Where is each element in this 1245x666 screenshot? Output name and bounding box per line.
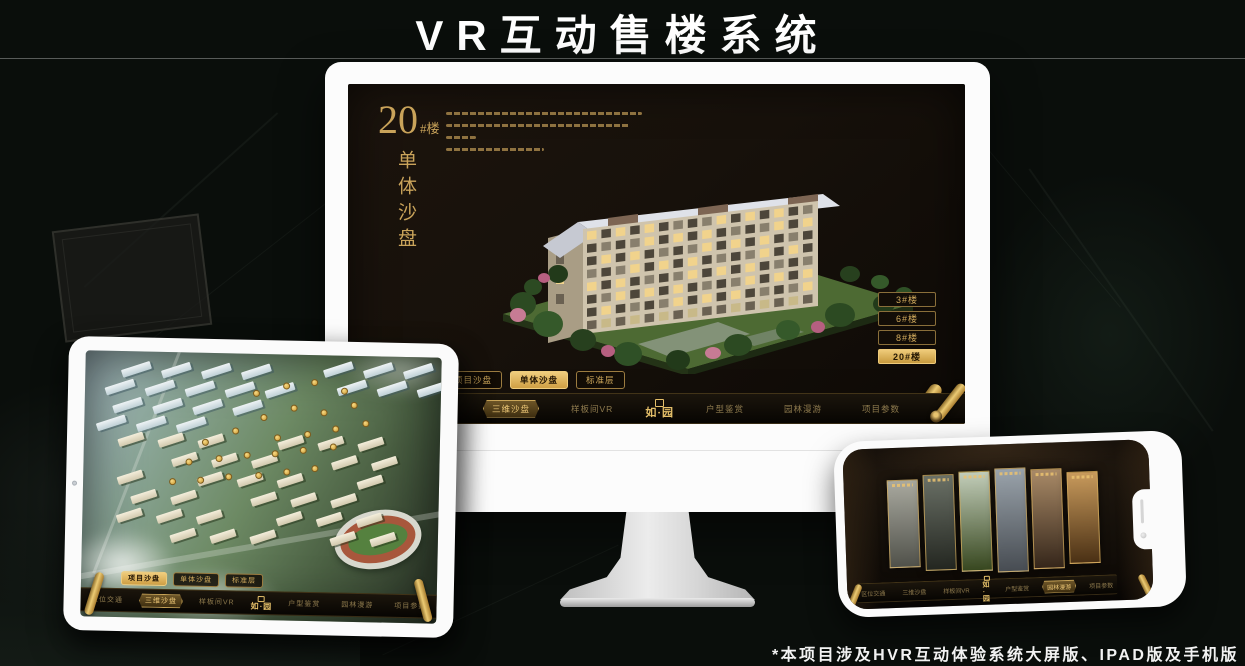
phone-notch	[1132, 489, 1153, 550]
building-slab	[96, 414, 127, 431]
seal-icon	[258, 595, 265, 601]
building-slab	[152, 398, 183, 415]
seal-icon	[984, 575, 990, 580]
brand-logo-text: 如·园	[645, 408, 674, 419]
floor-button[interactable]: 20#楼	[878, 349, 936, 364]
building-slab	[176, 416, 207, 433]
panel-caption	[964, 475, 985, 479]
bg-plaque	[52, 213, 213, 342]
subtab[interactable]: 项目沙盘	[121, 571, 167, 586]
nav-item[interactable]: 园林漫游	[776, 401, 830, 417]
building-marker[interactable]	[244, 452, 251, 459]
panel-caption	[928, 478, 949, 482]
nav-item[interactable]: 园林漫游	[1042, 579, 1076, 593]
building-3d-model[interactable]	[488, 154, 928, 374]
building-slab	[171, 452, 198, 468]
building-marker[interactable]	[185, 458, 192, 465]
building-slab	[145, 379, 176, 396]
building-slab	[371, 456, 398, 472]
building-marker[interactable]	[300, 447, 307, 454]
building-slab	[277, 473, 304, 489]
nav-item[interactable]: 三维沙盘	[898, 585, 930, 597]
building-slab	[330, 493, 357, 509]
building-slab	[250, 491, 277, 507]
building-marker[interactable]	[225, 473, 232, 480]
building-slab	[156, 508, 183, 524]
panel-caption	[1072, 475, 1093, 479]
nav-item[interactable]: 园林漫游	[336, 599, 378, 612]
building-marker[interactable]	[291, 405, 298, 412]
panel-caption	[1036, 472, 1057, 476]
building-marker[interactable]	[216, 455, 223, 462]
building-marker[interactable]	[232, 427, 239, 434]
gallery-panel-garden[interactable]	[958, 471, 992, 572]
building-slab	[130, 489, 157, 505]
building-marker[interactable]	[169, 478, 176, 485]
phone-frame: 区位交通三维沙盘样板间VR 如·园 户型鉴赏园林漫游项目参数	[833, 430, 1187, 618]
gallery-panel-interior-dark[interactable]	[923, 474, 957, 571]
building-slab	[201, 363, 232, 380]
brand-logo[interactable]: 如·园	[250, 595, 272, 610]
building-slab	[121, 361, 152, 378]
tablet-device: 项目沙盘单体沙盘标准层 区位交通三维沙盘样板间VR 如·园 户型鉴赏园林漫游项目…	[63, 336, 459, 638]
building-marker[interactable]	[283, 468, 290, 475]
monitor-stand	[560, 512, 755, 600]
building-slab	[196, 509, 223, 525]
building-slab	[241, 363, 272, 380]
building-slab	[170, 490, 197, 506]
gallery-panel-autumn[interactable]	[1030, 468, 1064, 569]
building-marker[interactable]	[330, 443, 337, 450]
subtab[interactable]: 单体沙盘	[173, 572, 219, 587]
subtab[interactable]: 标准层	[576, 371, 625, 389]
nav-item[interactable]: 项目参数	[1085, 579, 1117, 591]
phone-device: 区位交通三维沙盘样板间VR 如·园 户型鉴赏园林漫游项目参数	[833, 430, 1187, 618]
panel-caption	[999, 472, 1020, 476]
building-slab	[161, 362, 192, 379]
nav-item[interactable]: 户型鉴赏	[698, 401, 752, 417]
floor-button[interactable]: 6#楼	[878, 311, 936, 326]
building-slab	[232, 399, 263, 416]
building-marker[interactable]	[320, 409, 327, 416]
floor-button-group: 3#楼6#楼8#楼20#楼	[878, 292, 936, 368]
floor-button[interactable]: 3#楼	[878, 292, 936, 307]
building-marker[interactable]	[272, 450, 279, 457]
building-slab	[209, 528, 236, 544]
building-number: 20	[378, 97, 418, 142]
speaker-icon	[1140, 499, 1144, 523]
building-slab	[357, 475, 384, 491]
tablet-nav-area: 项目沙盘单体沙盘标准层 区位交通三维沙盘样板间VR 如·园 户型鉴赏园林漫游项目…	[80, 570, 437, 618]
title-divider	[0, 58, 1245, 59]
building-number-suffix: #楼	[420, 121, 440, 136]
panel-caption	[892, 483, 913, 487]
building-marker[interactable]	[351, 402, 358, 409]
building-slab	[276, 511, 303, 527]
nav-item[interactable]: 样板间VR	[194, 596, 240, 609]
gallery-panel-facade[interactable]	[994, 467, 1029, 572]
nav-item[interactable]: 三维沙盘	[483, 400, 539, 418]
monitor-subtabs: 项目沙盘单体沙盘标准层	[444, 371, 625, 389]
building-marker[interactable]	[253, 390, 260, 397]
gallery-panel-interior-warm[interactable]	[1066, 471, 1100, 564]
building-subtitle-vertical: 单体沙盘	[392, 150, 419, 254]
building-slab	[169, 528, 196, 544]
nav-item[interactable]: 样板间VR	[563, 401, 621, 417]
footnote: *本项目涉及HVR互动体验系统大屏版、IPAD版及手机版	[772, 641, 1239, 665]
building-slab	[192, 398, 223, 415]
building-marker[interactable]	[255, 472, 262, 479]
brand-logo-text: 如·园	[982, 581, 992, 602]
building-slab	[316, 512, 343, 528]
building-marker[interactable]	[304, 431, 311, 438]
building-slab	[290, 492, 317, 508]
tablet-screen: 项目沙盘单体沙盘标准层 区位交通三维沙盘样板间VR 如·园 户型鉴赏园林漫游项目…	[80, 350, 441, 623]
brand-logo[interactable]: 如·园	[645, 399, 674, 419]
promo-canvas: VR互动售楼系统 20#楼 单体沙盘	[0, 0, 1245, 666]
seal-icon	[655, 399, 664, 407]
building-description-lines	[446, 112, 646, 160]
building-slab	[357, 437, 384, 453]
building-marker[interactable]	[362, 420, 369, 427]
monitor-base	[560, 598, 755, 607]
nav-item[interactable]: 样板间VR	[939, 584, 974, 596]
building-slab	[117, 431, 144, 447]
building-marker[interactable]	[260, 414, 267, 421]
brand-logo-text: 如·园	[250, 602, 272, 610]
gallery-panel-courtyard[interactable]	[887, 479, 921, 568]
building-slab	[331, 455, 358, 471]
building-slab	[185, 380, 216, 397]
floor-button[interactable]: 8#楼	[878, 330, 936, 345]
tablet-frame: 项目沙盘单体沙盘标准层 区位交通三维沙盘样板间VR 如·园 户型鉴赏园林漫游项目…	[63, 336, 459, 638]
nav-item[interactable]: 项目参数	[854, 401, 908, 417]
building-marker[interactable]	[341, 388, 348, 395]
building-slab	[225, 381, 256, 398]
building-slab	[112, 397, 143, 414]
building-slab	[157, 432, 184, 448]
phone-gallery	[886, 463, 1101, 578]
page-title: VR互动售楼系统	[0, 2, 1245, 63]
building-slab	[265, 382, 296, 399]
nav-item[interactable]: 三维沙盘	[139, 593, 183, 608]
phone-screen: 区位交通三维沙盘样板间VR 如·园 户型鉴赏园林漫游项目参数	[842, 439, 1153, 610]
building-marker[interactable]	[274, 434, 281, 441]
building-marker[interactable]	[332, 425, 339, 432]
nav-item[interactable]: 区位交通	[857, 587, 889, 599]
subtab[interactable]: 单体沙盘	[510, 371, 568, 389]
brand-logo[interactable]: 如·园	[982, 575, 993, 602]
building-marker[interactable]	[311, 379, 318, 386]
phone-navbar: 区位交通三维沙盘样板间VR 如·园 户型鉴赏园林漫游项目参数	[857, 574, 1118, 603]
building-slab	[105, 379, 136, 396]
nav-item[interactable]: 户型鉴赏	[1001, 582, 1033, 594]
building-marker[interactable]	[283, 382, 290, 389]
building-title: 20#楼	[378, 100, 440, 140]
camera-icon	[72, 481, 77, 486]
camera-icon	[1140, 532, 1146, 538]
building-marker[interactable]	[311, 465, 318, 472]
nav-item[interactable]: 户型鉴赏	[283, 597, 325, 610]
subtab[interactable]: 标准层	[225, 573, 263, 588]
